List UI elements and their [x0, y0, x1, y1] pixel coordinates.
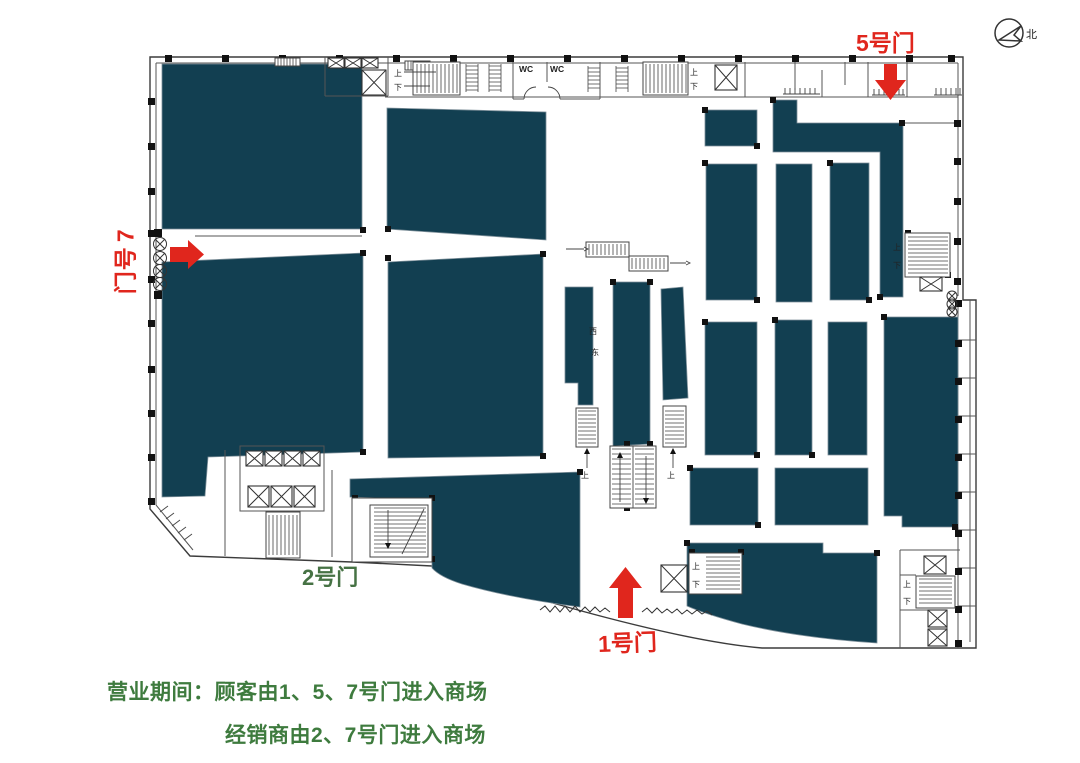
stairs-icon: 上 [663, 406, 686, 480]
stairs-icon [370, 505, 428, 557]
store-block [613, 282, 650, 446]
store-block [830, 163, 869, 300]
store-block [776, 164, 812, 302]
store-block [387, 108, 546, 240]
door7-label: 7号门 [112, 224, 140, 294]
stair-down-label: 下 [394, 83, 402, 92]
store-block [162, 64, 362, 229]
stair-down-label: 下 [690, 82, 698, 91]
stair-down-label: 下 [903, 597, 911, 606]
store-block [884, 317, 958, 527]
store-block [705, 322, 757, 455]
store-block [775, 468, 868, 525]
store-block [661, 287, 688, 400]
ladder-icon [489, 64, 501, 92]
stair-up-label: 上 [893, 243, 901, 252]
stair-down-label: 下 [692, 580, 700, 589]
stair-down-label: 下 [893, 261, 901, 270]
stairs-icon: 上 下 [643, 62, 698, 95]
ladder-icon [616, 66, 628, 92]
stair-up-label: 上 [690, 68, 698, 77]
stairs-icon: 上 下 [689, 553, 742, 594]
compass: 北 [995, 19, 1037, 47]
door1-arrow-icon [609, 567, 642, 618]
door1-label: 1号门 [597, 623, 657, 659]
right-wall-cells [958, 300, 976, 648]
elevator-bank [225, 446, 332, 558]
store-block [705, 110, 757, 146]
mall-floor-plan: 上 下 WC WC 上 下 [0, 0, 1080, 763]
wc-label: WC [550, 64, 564, 74]
legend-line1: 营业期间：顾客由1、5、7号门进入商场 [107, 676, 488, 706]
wc-rooms: WC WC [513, 62, 600, 99]
west-label: 西 [589, 327, 597, 336]
store-block [388, 254, 543, 458]
bottom-right-core: 上 下 [900, 550, 960, 648]
ladder-icon [466, 64, 478, 92]
stair-up-label: 上 [692, 562, 700, 571]
wc-label: WC [519, 64, 533, 74]
central-stairs-icon [610, 446, 656, 508]
stair-up-label: 上 [394, 69, 402, 78]
door2-stairwell [352, 498, 432, 562]
stair-up-label: 上 [581, 471, 589, 480]
stair-up-label: 上 [903, 580, 911, 589]
door2-label: 2号门 [302, 560, 358, 592]
stairs-icon [266, 512, 300, 558]
store-block [775, 320, 812, 455]
floor-plan-canvas: 上 下 WC WC 上 下 [0, 0, 1080, 763]
north-label: 北 [1026, 28, 1037, 41]
stairs-icon: 上 下 [903, 576, 955, 608]
east-label: 东 [591, 347, 599, 357]
stair-up-label: 上 [667, 471, 675, 480]
door5-label: 5号门 [856, 24, 915, 58]
legend-line2: 经销商由2、7号门进入商场 [225, 719, 486, 749]
store-block [565, 287, 593, 405]
store-block [828, 322, 867, 455]
store-block [706, 164, 757, 300]
store-block [690, 468, 758, 525]
stairs-icon: 上 下 [394, 62, 460, 95]
escalator-icon [566, 242, 690, 271]
ladder-icon [588, 66, 600, 92]
